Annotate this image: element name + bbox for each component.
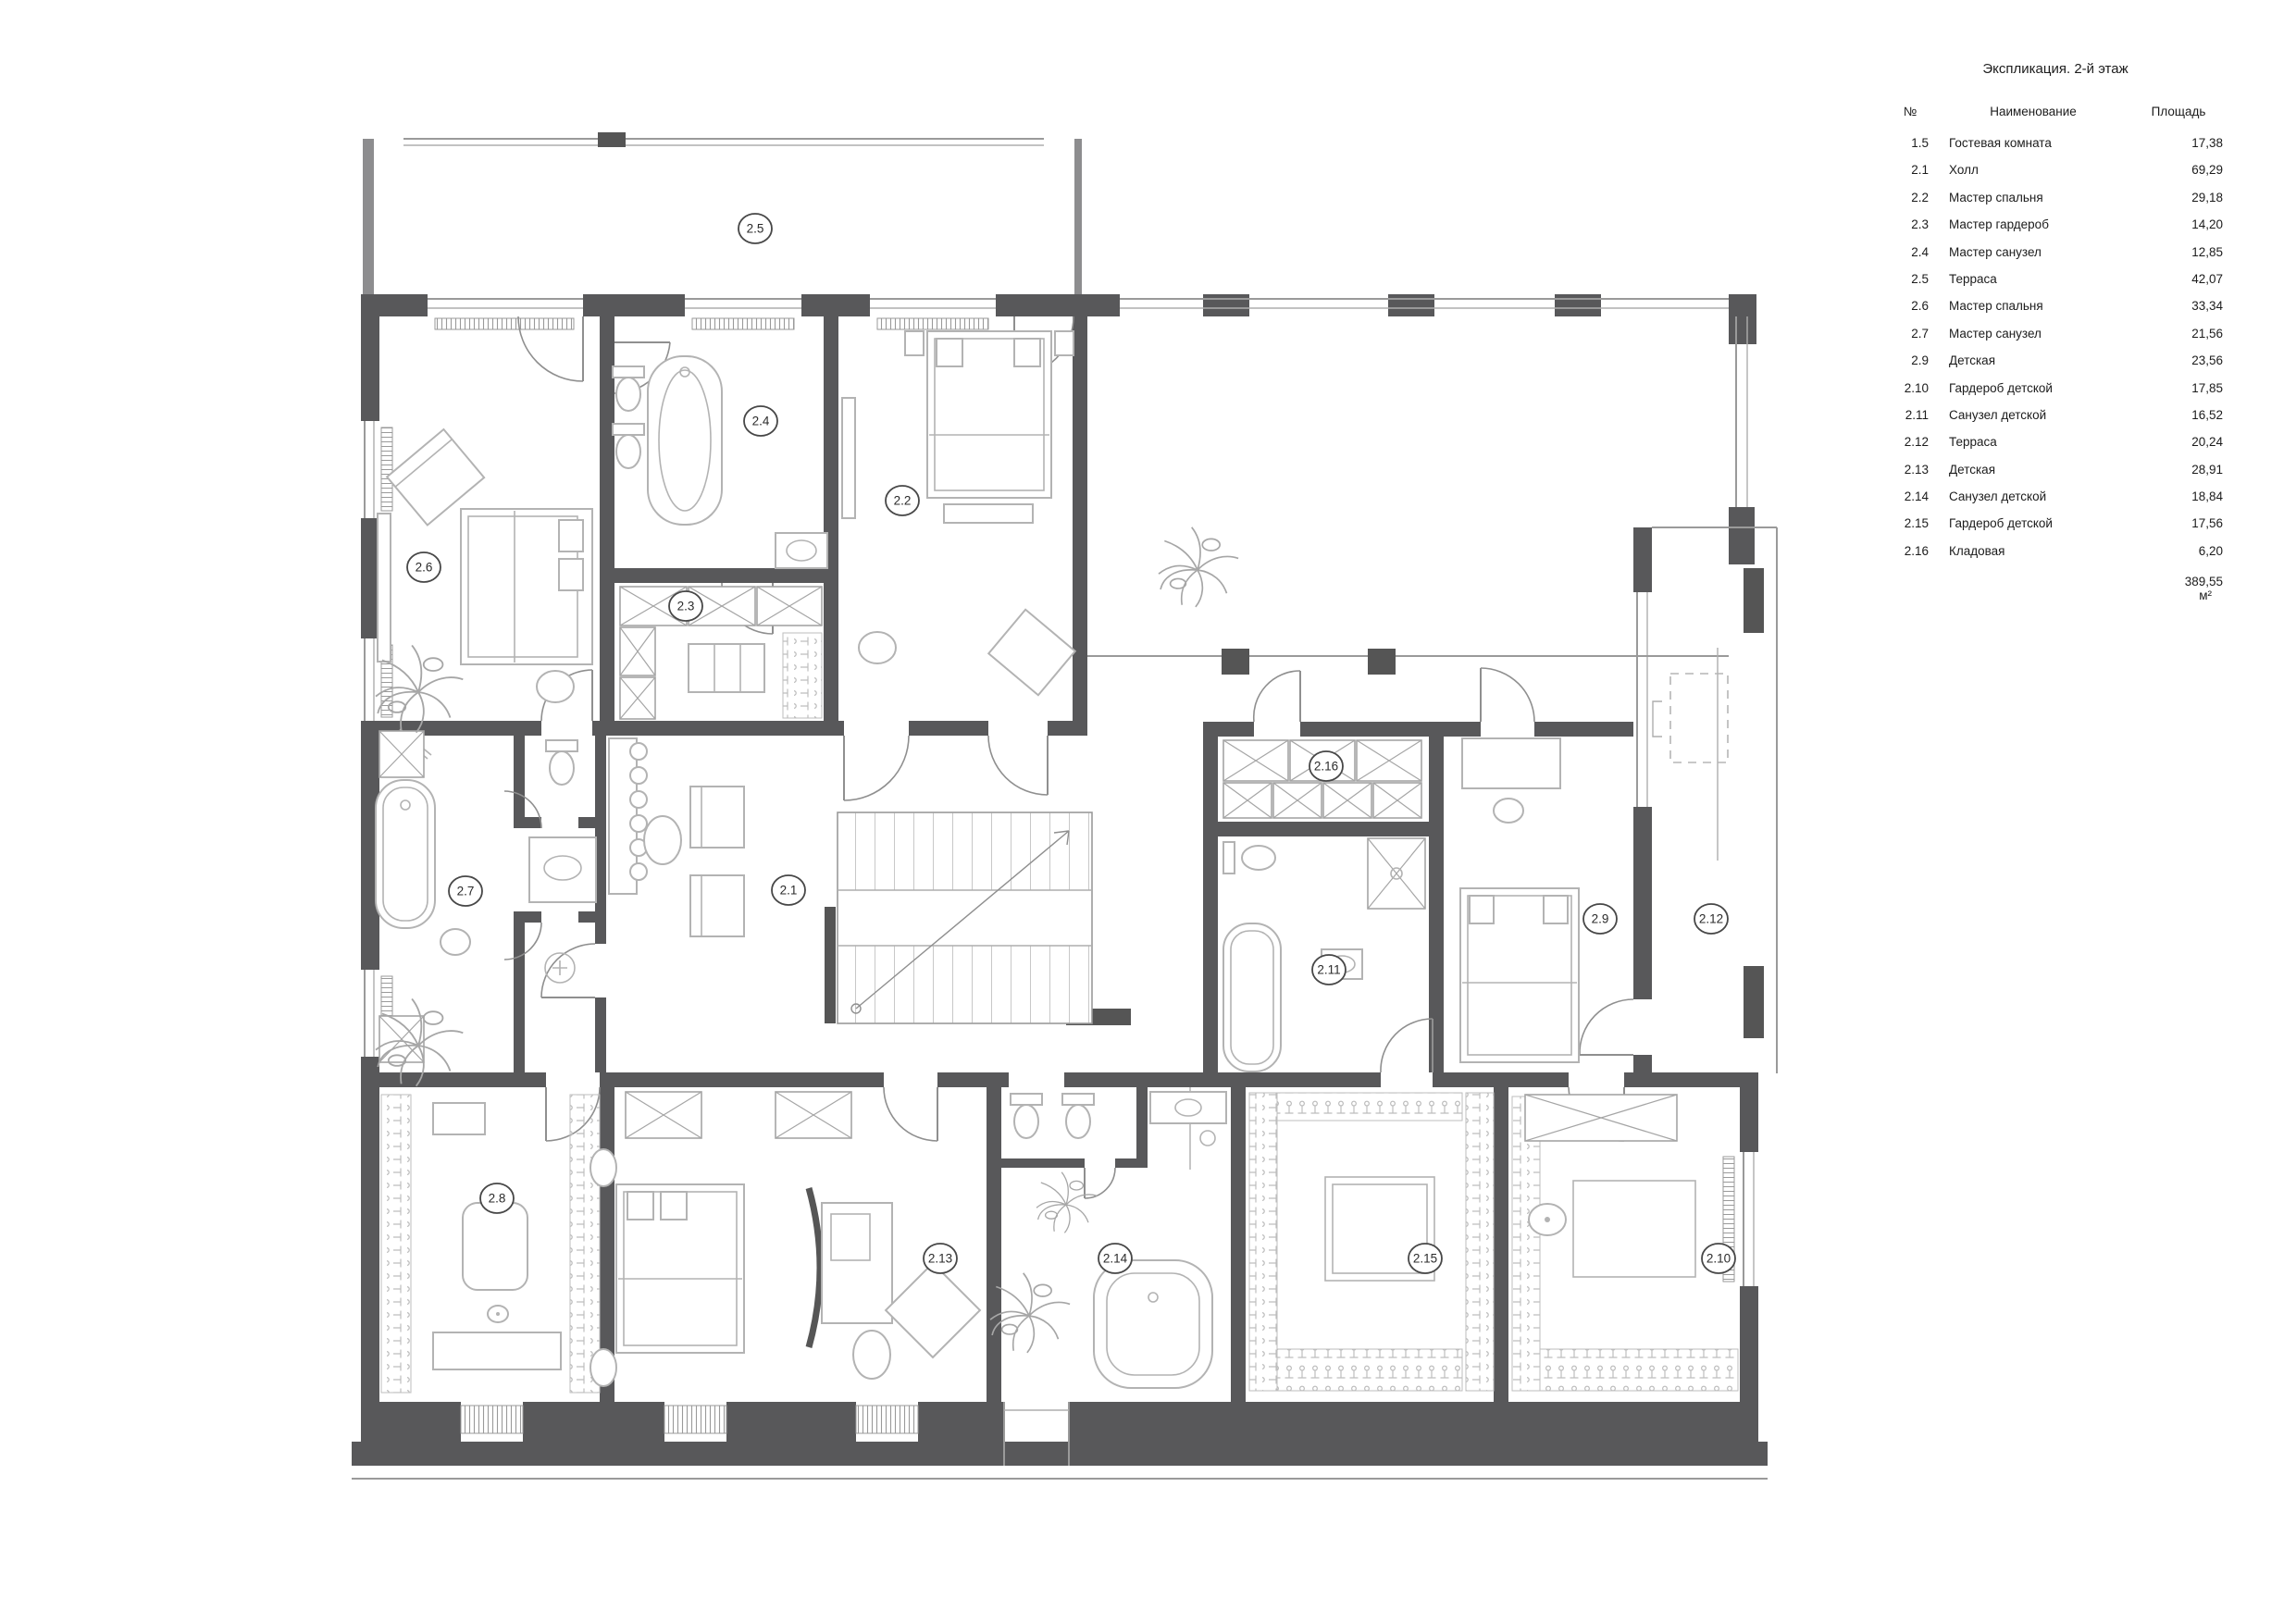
legend-row: 2.5Терраса42,07 <box>1886 272 2225 299</box>
svg-text:2.7: 2.7 <box>457 885 475 898</box>
legend-row: 2.10Гардероб детской17,85 <box>1886 381 2225 408</box>
legend-rows: 1.5Гостевая комната17,382.1Холл69,292.2М… <box>1886 136 2225 571</box>
bedroom-2-9 <box>1460 738 1579 1062</box>
svg-text:2.11: 2.11 <box>1317 963 1340 977</box>
bedroom-2-2 <box>842 331 1075 695</box>
floor-plan-sheet: 2.52.42.22.62.32.72.12.162.112.92.122.82… <box>0 0 2296 1623</box>
legend-row: 2.12Терраса20,24 <box>1886 435 2225 462</box>
room-label-2.16: 2.16 <box>1309 751 1343 781</box>
svg-text:2.12: 2.12 <box>1699 912 1723 926</box>
legend-row: 2.2Мастер спальня29,18 <box>1886 191 2225 217</box>
room-label-2.2: 2.2 <box>886 486 919 515</box>
room-label-2.11: 2.11 <box>1312 955 1346 985</box>
legend-row: 2.15Гардероб детской17,56 <box>1886 516 2225 543</box>
legend-total-unit-row: м² <box>1886 588 2225 602</box>
furniture <box>376 331 1738 1393</box>
legend-total: 389,55 <box>1886 575 2225 588</box>
room-label-2.5: 2.5 <box>738 214 772 243</box>
wardrobe-2-3 <box>620 587 822 719</box>
svg-text:2.15: 2.15 <box>1413 1252 1437 1266</box>
bedroom-2-13 <box>590 1092 980 1386</box>
room-label-2.6: 2.6 <box>407 552 441 582</box>
legend-row: 2.1Холл69,29 <box>1886 163 2225 190</box>
legend-col-area: Площадь <box>2132 105 2225 118</box>
room-label-2.13: 2.13 <box>924 1244 957 1273</box>
svg-text:2.1: 2.1 <box>780 884 798 898</box>
wardrobe-2-8 <box>381 1095 600 1393</box>
svg-text:2.5: 2.5 <box>747 222 764 236</box>
svg-text:2.6: 2.6 <box>416 561 433 575</box>
legend-row: 2.9Детская23,56 <box>1886 353 2225 380</box>
bathroom-2-4 <box>613 356 827 568</box>
legend-row: 2.16Кладовая6,20 <box>1886 544 2225 571</box>
hall-2-1 <box>609 738 1092 1023</box>
room-label-2.4: 2.4 <box>744 406 777 436</box>
svg-text:2.8: 2.8 <box>489 1192 506 1206</box>
legend-row: 1.5Гостевая комната17,38 <box>1886 136 2225 163</box>
room-label-2.1: 2.1 <box>772 875 805 905</box>
svg-text:2.16: 2.16 <box>1314 760 1338 774</box>
legend-title: Экспликация. 2-й этаж <box>1886 61 2225 77</box>
svg-text:2.4: 2.4 <box>752 415 770 428</box>
room-label-2.12: 2.12 <box>1694 904 1728 934</box>
terrace-2-5 <box>363 132 1082 316</box>
svg-text:2.13: 2.13 <box>928 1252 952 1266</box>
room-label-2.14: 2.14 <box>1098 1244 1132 1273</box>
legend-row: 2.11Санузел детской16,52 <box>1886 408 2225 435</box>
room-label-2.9: 2.9 <box>1583 904 1617 934</box>
legend-row: 2.7Мастер санузел21,56 <box>1886 327 2225 353</box>
legend-row: 2.13Детская28,91 <box>1886 463 2225 489</box>
room-label-2.8: 2.8 <box>480 1183 514 1213</box>
room-label-2.7: 2.7 <box>449 876 482 906</box>
terrace-2-12 <box>1652 527 1777 1073</box>
legend-table: Экспликация. 2-й этаж № Наименование Пло… <box>1886 61 2225 602</box>
legend-total-unit: м² <box>2132 588 2225 602</box>
svg-text:2.2: 2.2 <box>894 494 912 508</box>
legend-row: 2.3Мастер гардероб14,20 <box>1886 217 2225 244</box>
legend-col-num: № <box>1886 105 1934 118</box>
svg-text:2.10: 2.10 <box>1706 1252 1731 1266</box>
room-label-2.3: 2.3 <box>669 591 702 621</box>
room-label-2.15: 2.15 <box>1409 1244 1442 1273</box>
legend-total-area: 389,55 <box>2132 575 2225 588</box>
wardrobe-2-15 <box>1249 1093 1494 1391</box>
svg-text:2.14: 2.14 <box>1103 1252 1128 1266</box>
legend-row: 2.4Мастер санузел12,85 <box>1886 245 2225 272</box>
stairs <box>838 812 1092 1023</box>
legend-header: № Наименование Площадь <box>1886 105 2225 136</box>
legend-col-name: Наименование <box>1934 105 2132 118</box>
svg-text:2.9: 2.9 <box>1592 912 1609 926</box>
bathroom-2-7 <box>376 729 596 1062</box>
legend-row: 2.6Мастер спальня33,34 <box>1886 299 2225 326</box>
bathroom-2-14 <box>1011 1092 1226 1388</box>
legend-row: 2.14Санузел детской18,84 <box>1886 489 2225 516</box>
svg-text:2.3: 2.3 <box>677 600 695 613</box>
room-label-2.10: 2.10 <box>1702 1244 1735 1273</box>
wardrobe-2-10 <box>1512 1095 1738 1391</box>
